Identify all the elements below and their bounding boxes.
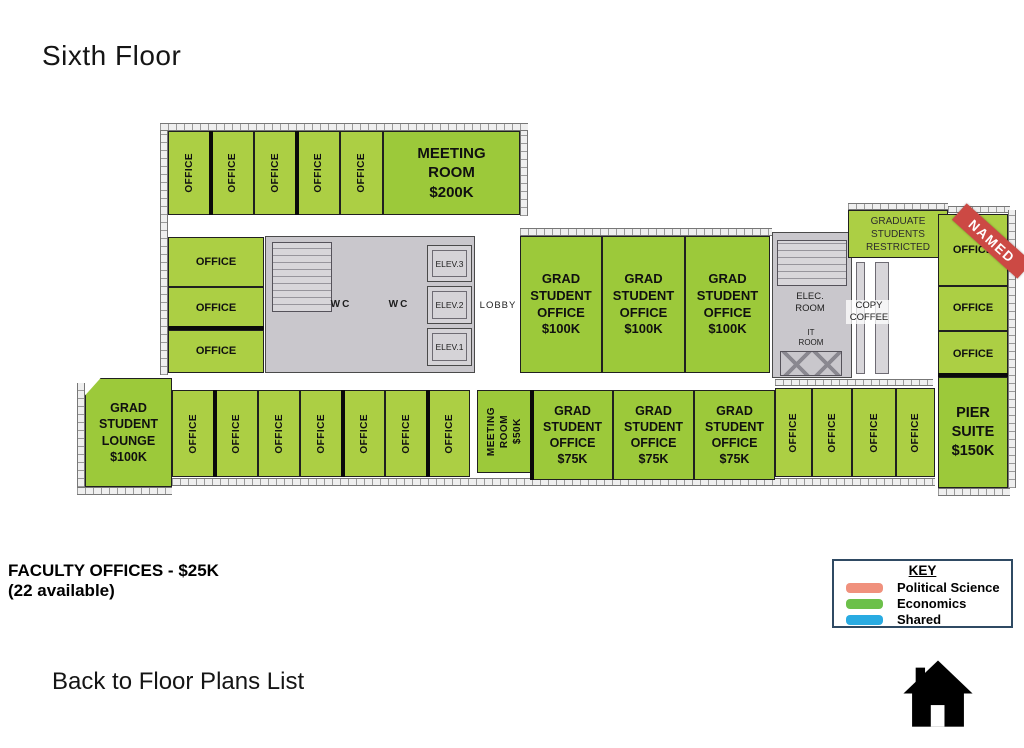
home-icon (902, 655, 974, 735)
legend: KEY Political Science Economics Shared (832, 559, 1013, 628)
meeting-room-50k: MEETING ROOM $50K (477, 390, 532, 473)
office-label: OFFICE (196, 301, 236, 315)
faculty-note-line2: (22 available) (8, 581, 219, 601)
grad-office-100k-label: GRAD STUDENT OFFICE $100K (530, 271, 591, 339)
office-label: OFFICE (400, 414, 413, 454)
page-title: Sixth Floor (42, 40, 181, 72)
office-room: OFFICE (215, 390, 258, 477)
office-label: OFFICE (196, 255, 236, 269)
elevator-1: ELEV.1 (427, 328, 472, 366)
legend-swatch-shared (846, 615, 883, 625)
interior-wall (426, 390, 430, 477)
pier-suite-label: PIER SUITE $150K (952, 404, 995, 461)
office-room: OFFICE (168, 287, 264, 330)
grad-student-office-75k: GRAD STUDENT OFFICE $75K (613, 390, 694, 480)
office-room: OFFICE (385, 390, 428, 477)
office-label: OFFICE (358, 414, 371, 454)
exterior-wall (160, 131, 168, 375)
home-button[interactable] (902, 655, 974, 735)
elevator-2-label: ELEV.2 (435, 300, 463, 310)
office-room: OFFICE (812, 388, 852, 477)
grad-student-office-75k: GRAD STUDENT OFFICE $75K (694, 390, 775, 480)
grad-office-100k-label: GRAD STUDENT OFFICE $100K (613, 271, 674, 339)
interior-wall (530, 390, 534, 480)
storage-crates (780, 351, 842, 376)
grad-student-office-100k: GRAD STUDENT OFFICE $100K (685, 236, 770, 373)
office-label: OFFICE (183, 153, 196, 193)
meeting-room-200k-label: MEETING ROOM $200K (417, 144, 485, 203)
office-room: OFFICE (938, 286, 1008, 331)
faculty-note-line1: FACULTY OFFICES - $25K (8, 561, 219, 581)
office-room: OFFICE (254, 131, 297, 215)
office-label: OFFICE (909, 413, 922, 453)
legend-item-shared: Shared (846, 613, 1011, 626)
legend-item-economics: Economics (846, 597, 1011, 610)
lounge-label: GRAD STUDENT LOUNGE $100K (99, 400, 158, 465)
office-room: OFFICE (938, 331, 1008, 378)
legend-label: Economics (897, 596, 966, 611)
wc-label: WC (328, 299, 354, 312)
it-room-label: IT ROOM (782, 328, 840, 348)
exterior-wall (938, 488, 1010, 496)
elevator-2: ELEV.2 (427, 286, 472, 324)
office-room: OFFICE (168, 237, 264, 287)
stairs (272, 242, 332, 312)
office-label: OFFICE (226, 153, 239, 193)
grad-student-lounge: GRAD STUDENT LOUNGE $100K (85, 378, 172, 487)
office-label: OFFICE (953, 347, 993, 361)
grad-office-75k-label: GRAD STUDENT OFFICE $75K (624, 403, 683, 468)
office-room: OFFICE (428, 390, 470, 477)
office-room: OFFICE (775, 388, 812, 477)
office-room: OFFICE (896, 388, 935, 477)
stairs (777, 240, 847, 286)
pier-suite: PIER SUITE $150K (938, 377, 1008, 488)
interior-wall (168, 326, 264, 330)
exterior-wall (160, 123, 528, 131)
exterior-wall (520, 228, 772, 236)
exterior-wall (77, 487, 172, 495)
exterior-wall (775, 379, 933, 386)
grad-student-office-75k: GRAD STUDENT OFFICE $75K (532, 390, 613, 480)
office-room: OFFICE (168, 330, 264, 373)
grad-office-100k-label: GRAD STUDENT OFFICE $100K (697, 271, 758, 339)
exterior-wall (848, 203, 948, 210)
office-label: OFFICE (787, 413, 800, 453)
interior-wall (295, 131, 299, 215)
office-label: OFFICE (355, 153, 368, 193)
office-label: OFFICE (187, 414, 200, 454)
graduate-students-restricted-room: GRADUATE STUDENTS RESTRICTED (848, 210, 948, 258)
meeting-room-50k-label: MEETING ROOM $50K (485, 407, 524, 456)
faculty-offices-note: FACULTY OFFICES - $25K (22 available) (8, 561, 219, 602)
interior-wall (213, 390, 217, 477)
grad-office-75k-label: GRAD STUDENT OFFICE $75K (705, 403, 764, 468)
interior-wall (341, 390, 345, 477)
office-label: OFFICE (269, 153, 282, 193)
office-room: OFFICE (300, 390, 343, 477)
exterior-wall (77, 383, 85, 487)
office-label: OFFICE (312, 153, 325, 193)
office-room: OFFICE (172, 390, 215, 477)
office-room: OFFICE (211, 131, 254, 215)
legend-swatch-economics (846, 599, 883, 609)
office-room: OFFICE (340, 131, 383, 215)
office-room: OFFICE (258, 390, 300, 477)
grad-restricted-label: GRADUATE STUDENTS RESTRICTED (866, 215, 930, 254)
legend-label: Political Science (897, 580, 1000, 595)
grad-office-75k-label: GRAD STUDENT OFFICE $75K (543, 403, 602, 468)
office-label: OFFICE (196, 344, 236, 358)
office-label: OFFICE (953, 301, 993, 315)
grad-student-office-100k: GRAD STUDENT OFFICE $100K (520, 236, 602, 373)
interior-wall (938, 373, 1008, 377)
office-label: OFFICE (868, 413, 881, 453)
elevator-3-label: ELEV.3 (435, 259, 463, 269)
office-label: OFFICE (443, 414, 456, 454)
back-to-floor-plans-link[interactable]: Back to Floor Plans List (52, 668, 304, 696)
elec-room-label: ELEC. ROOM (778, 291, 842, 315)
office-room: OFFICE (168, 131, 211, 215)
copy-coffee-label: COPY COFFEE (846, 300, 892, 324)
office-room: OFFICE (343, 390, 385, 477)
office-label: OFFICE (230, 414, 243, 454)
office-room: OFFICE (297, 131, 340, 215)
lobby-label: LOBBY (476, 300, 520, 312)
elevator-1-label: ELEV.1 (435, 342, 463, 352)
office-label: OFFICE (315, 414, 328, 454)
legend-title: KEY (834, 563, 1011, 578)
meeting-room-200k: MEETING ROOM $200K (383, 131, 520, 215)
interior-wall (209, 131, 213, 215)
office-label: OFFICE (273, 414, 286, 454)
office-label: OFFICE (826, 413, 839, 453)
wc-label: WC (386, 299, 412, 312)
office-room: OFFICE (852, 388, 896, 477)
elevator-3: ELEV.3 (427, 245, 472, 282)
legend-label: Shared (897, 612, 941, 627)
legend-swatch-political-science (846, 583, 883, 593)
grad-student-office-100k: GRAD STUDENT OFFICE $100K (602, 236, 685, 373)
legend-item-political-science: Political Science (846, 581, 1011, 594)
page: Sixth Floor OFFICE OFFICE OFFICE OFFICE … (0, 0, 1024, 748)
exterior-wall (520, 131, 528, 216)
